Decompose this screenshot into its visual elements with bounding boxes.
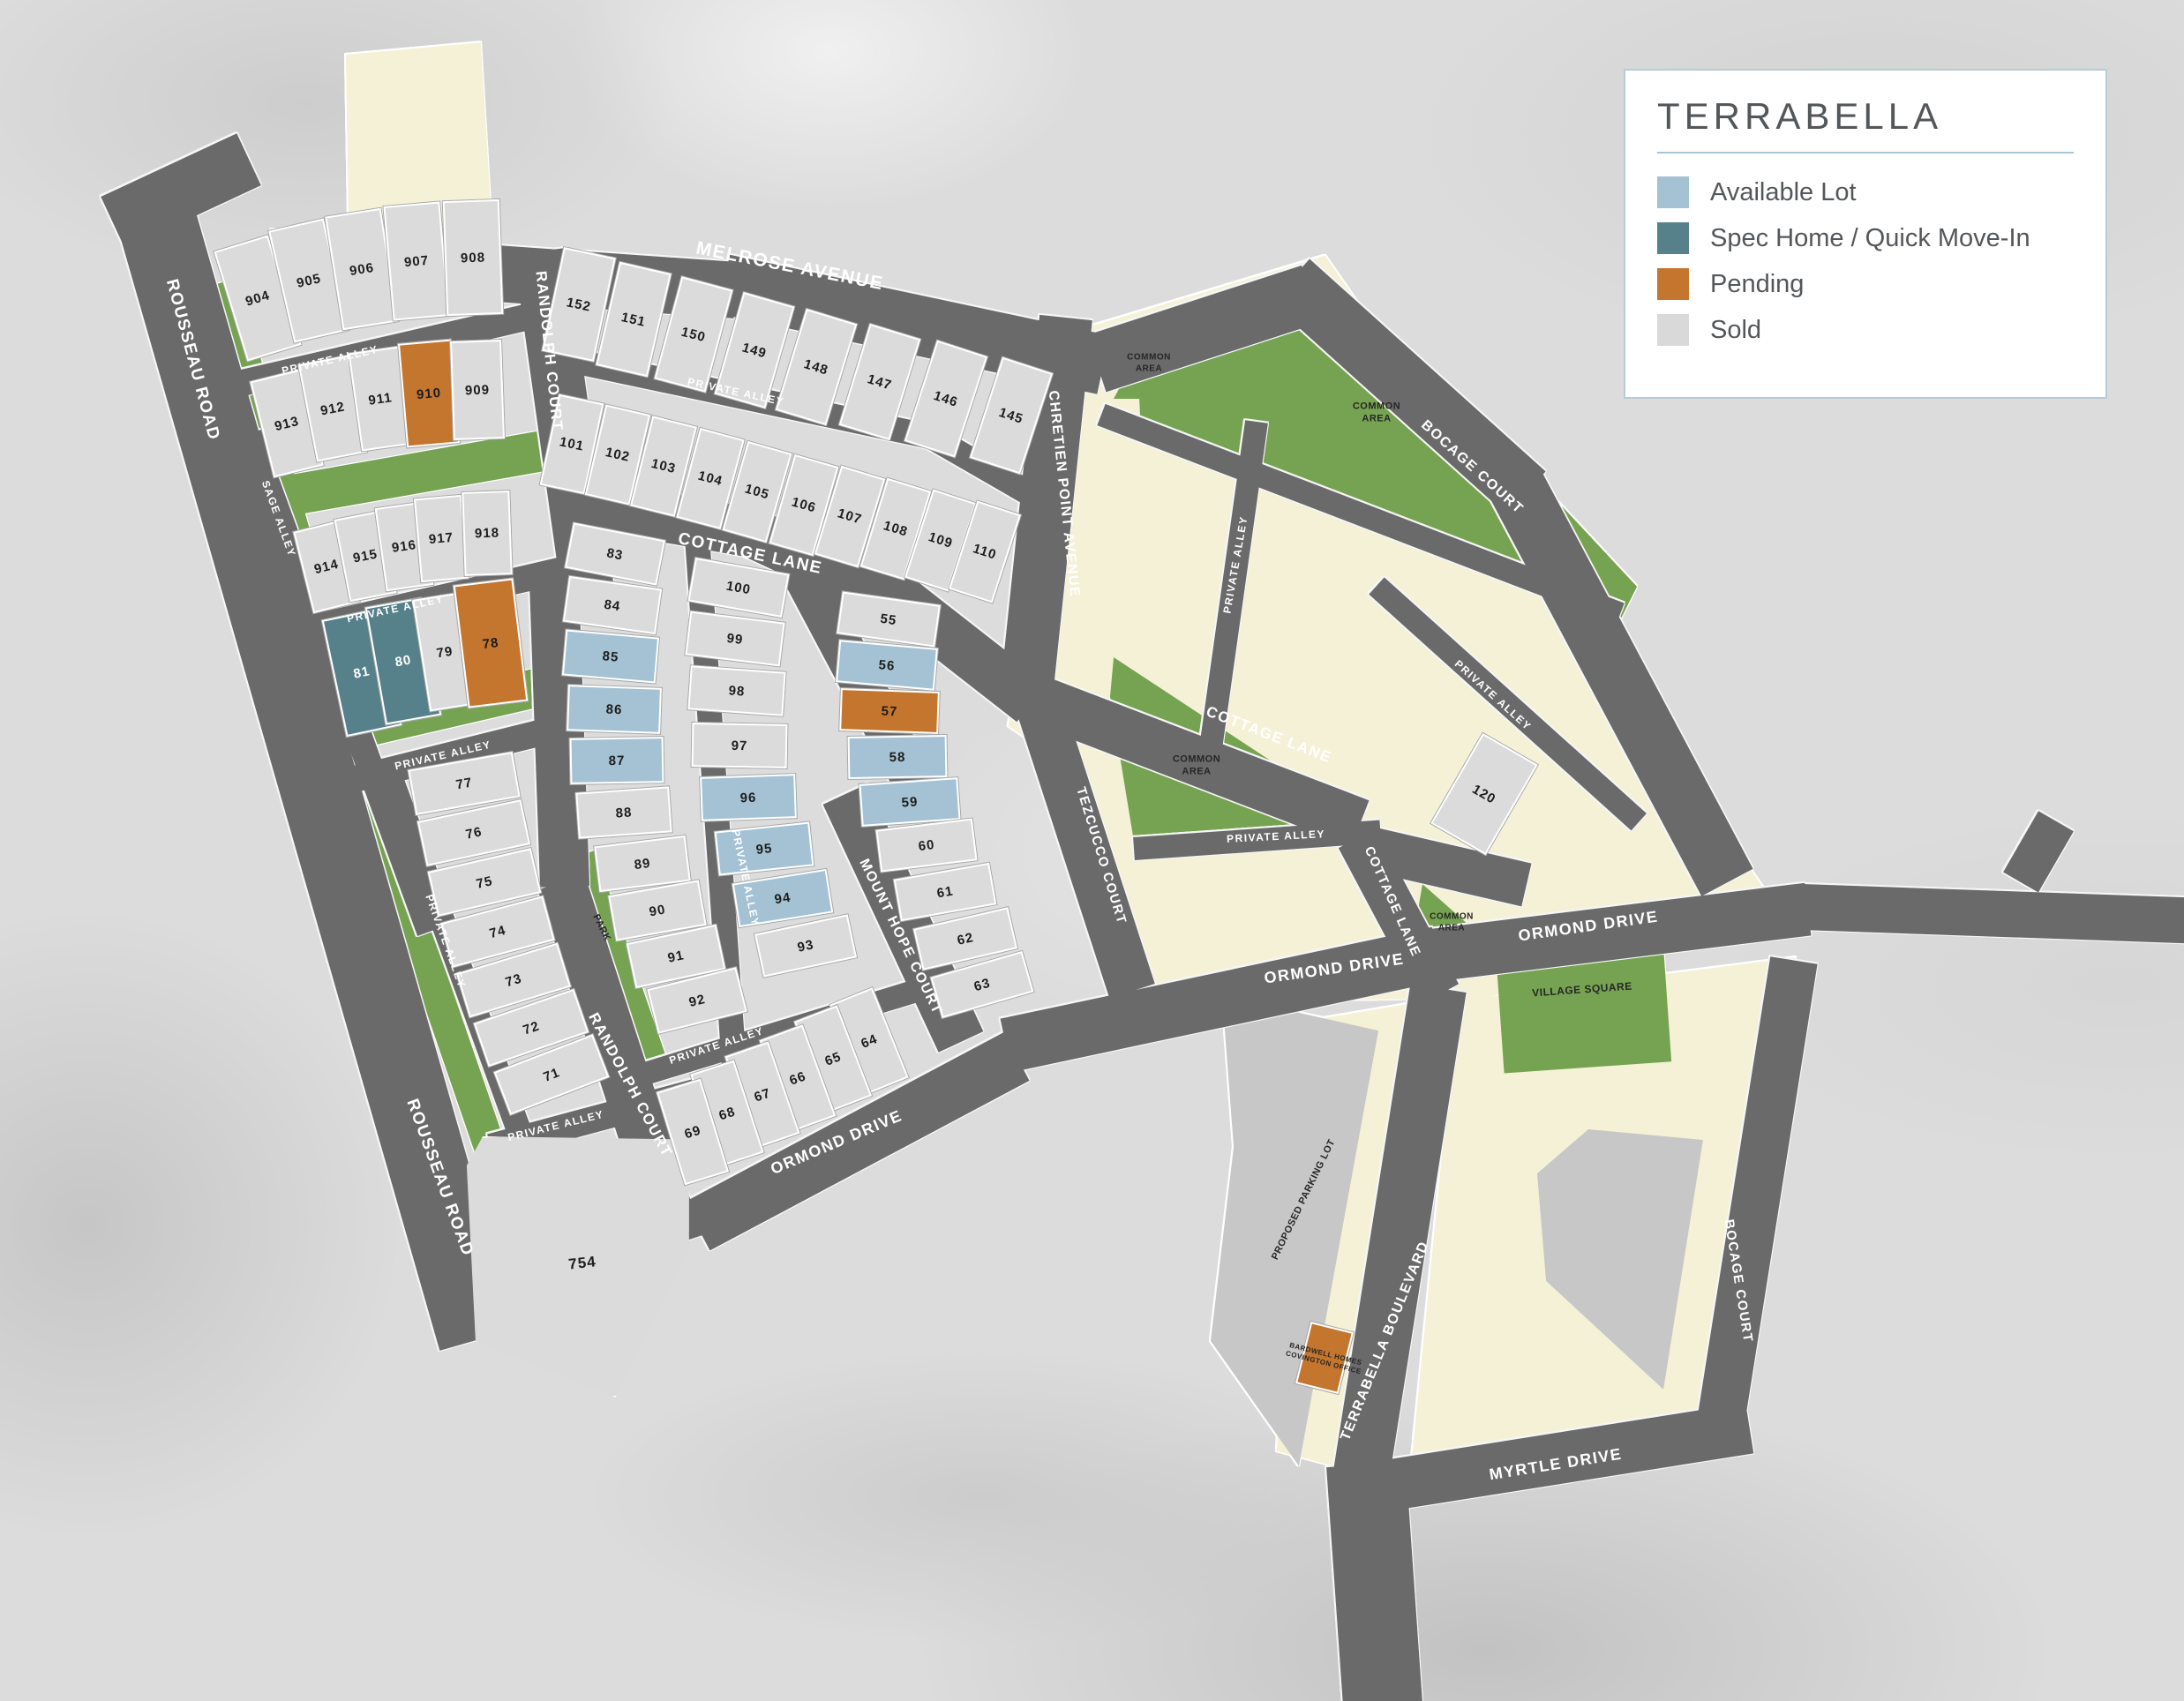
area-label: PROPOSED PARKING LOT: [1270, 1137, 1339, 1262]
legend-title: TERRABELLA: [1657, 95, 2074, 138]
legend-swatch-sold: [1657, 314, 1689, 346]
legend-item-spec: Spec Home / Quick Move-In: [1657, 222, 2074, 254]
area-label: PARK: [589, 912, 613, 943]
street-label: TERRABELLA BOULEVARD: [1338, 1239, 1433, 1443]
street-label: PRIVATE ALLEY: [281, 343, 379, 378]
legend-item-pending: Pending: [1657, 268, 2074, 300]
legend-swatch-spec: [1657, 222, 1689, 254]
legend-rule: [1657, 152, 2074, 154]
street-label: ORMOND DRIVE: [1263, 949, 1405, 987]
legend-label-pending: Pending: [1710, 270, 1804, 299]
street-label: BOCAGE COURT: [1722, 1218, 1756, 1344]
street-label: COTTAGE LANE: [1204, 703, 1334, 768]
street-label: PRIVATE ALLEY: [687, 376, 785, 408]
street-label: BOCAGE COURT: [1417, 417, 1526, 517]
street-label: ROUSSEAU ROAD: [402, 1097, 477, 1260]
street-label: RANDOLPH COURT: [584, 1010, 675, 1161]
street-label: PRIVATE ALLEY: [1227, 828, 1326, 845]
street-label: COTTAGE LANE: [1362, 844, 1424, 959]
street-label: RANDOLPH COURT: [532, 270, 567, 432]
area-label: COMMON AREA: [1173, 753, 1220, 778]
legend-item-sold: Sold: [1657, 314, 2074, 346]
legend-label-sold: Sold: [1710, 316, 1761, 345]
legend-swatch-pending: [1657, 268, 1689, 300]
street-label: PRIVATE ALLEY: [1452, 657, 1535, 732]
area-label: BARDWELL HOMES COVINGTON OFFICE: [1285, 1341, 1364, 1377]
legend-panel: TERRABELLA Available LotSpec Home / Quic…: [1624, 69, 2107, 399]
terrabella-site-map: 9049059069079089139129119109099149159169…: [0, 0, 2184, 1701]
street-label: CHRETIEN POINT AVENUE: [1045, 390, 1083, 599]
street-label: COTTAGE LANE: [676, 529, 823, 579]
legend-swatch-available: [1657, 176, 1689, 208]
street-label: PRIVATE ALLEY: [668, 1024, 766, 1067]
street-label: PRIVATE ALLEY: [346, 593, 445, 626]
street-label: MELROSE AVENUE: [694, 238, 885, 296]
area-label: VILLAGE SQUARE: [1532, 980, 1632, 1000]
area-label: COMMON AREA: [1127, 353, 1171, 375]
street-label: PRIVATE ALLEY: [394, 738, 492, 773]
street-label: MYRTLE DRIVE: [1488, 1445, 1623, 1485]
street-label: MOUNT HOPE COURT: [855, 857, 944, 1017]
street-label: PRIVATE ALLEY: [730, 828, 762, 927]
area-label: COMMON AREA: [1430, 912, 1474, 934]
street-label: ORMOND DRIVE: [768, 1106, 905, 1179]
street-label: PRIVATE ALLEY: [423, 893, 468, 990]
legend-item-available: Available Lot: [1657, 176, 2074, 208]
street-label: SAGE ALLEY: [259, 479, 298, 559]
street-label: PRIVATE ALLEY: [507, 1108, 605, 1144]
street-label: PRIVATE ALLEY: [1220, 515, 1250, 615]
street-label: ROUSSEAU ROAD: [161, 277, 223, 443]
area-label: COMMON AREA: [1353, 401, 1400, 425]
legend-label-available: Available Lot: [1710, 178, 1857, 207]
street-label: TEZCUCCO COURT: [1073, 785, 1130, 926]
street-label: ORMOND DRIVE: [1517, 907, 1659, 945]
legend-items: Available LotSpec Home / Quick Move-InPe…: [1657, 176, 2074, 346]
legend-label-spec: Spec Home / Quick Move-In: [1710, 224, 2030, 253]
